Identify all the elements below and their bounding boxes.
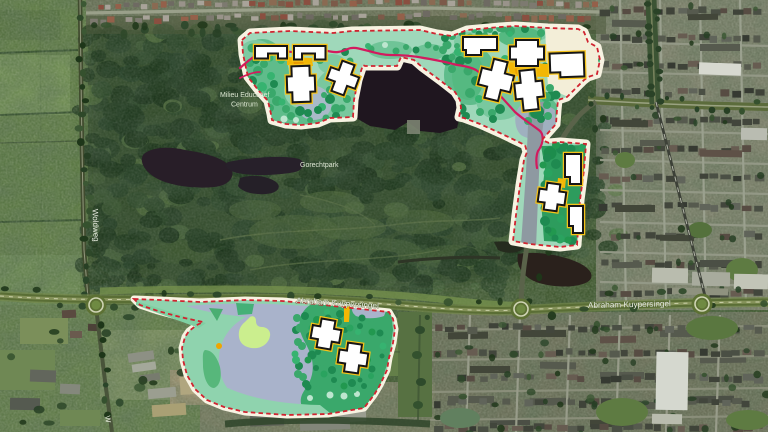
svg-text:Centrum: Centrum xyxy=(231,102,258,109)
svg-text:Milieu Educatief: Milieu Educatief xyxy=(220,92,269,99)
svg-text:Woldweg: Woldweg xyxy=(91,209,101,242)
svg-text:Abraham Kuypersingel: Abraham Kuypersingel xyxy=(588,299,671,310)
svg-text:Gorechtpark: Gorechtpark xyxy=(300,162,339,169)
